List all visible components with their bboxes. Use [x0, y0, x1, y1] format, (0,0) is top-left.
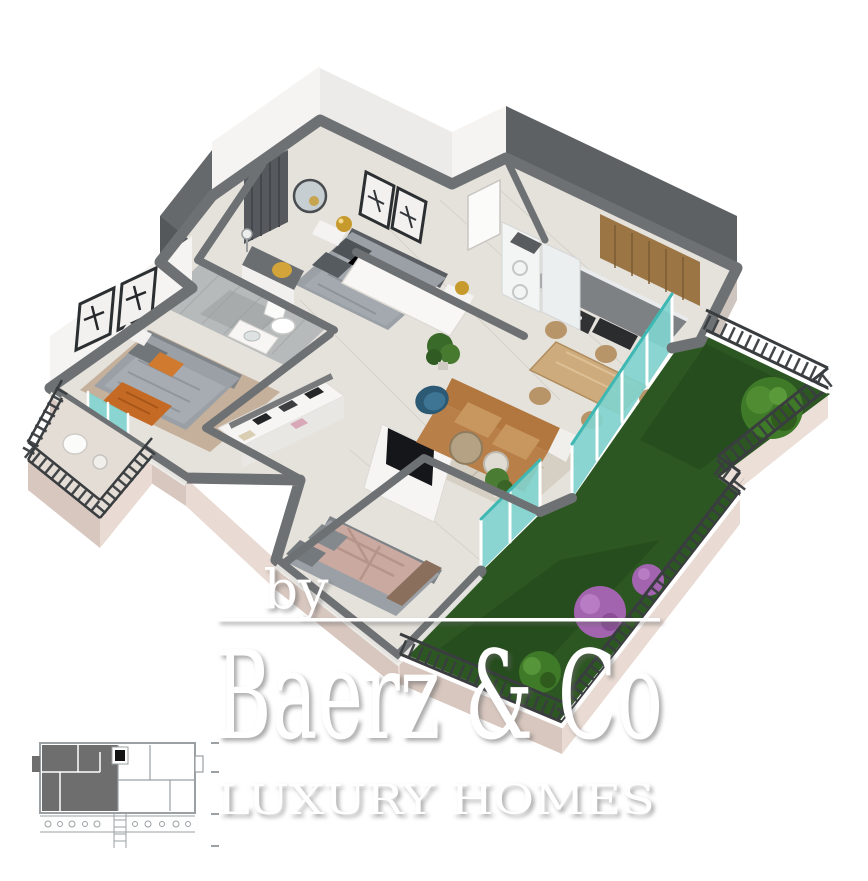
- brand-name: Baerz & Co: [215, 625, 663, 767]
- dining-chair: [545, 321, 567, 339]
- inset-highlighted-unit: [42, 745, 118, 811]
- floorplan-render-page: by Baerz & Co LUXURY HOMES: [0, 0, 868, 881]
- dining-chair: [529, 387, 551, 405]
- balcony-chair: [63, 434, 87, 454]
- watermark-line: [217, 618, 660, 622]
- isometric-floorplan: by Baerz & Co LUXURY HOMES: [0, 0, 868, 881]
- balcony-table: [93, 455, 107, 469]
- toilet: [271, 318, 295, 334]
- inset-garden-band: [40, 814, 195, 848]
- shower-head: [242, 229, 252, 239]
- gold-lamp: [336, 216, 352, 232]
- yellow-chair: [272, 262, 292, 278]
- coffee-table: [450, 432, 482, 464]
- inset-floorplan: [32, 743, 219, 848]
- dining-chair: [595, 345, 617, 363]
- gold-lamp: [455, 281, 469, 295]
- round-mirror: [294, 180, 326, 212]
- tagline: LUXURY HOMES: [217, 776, 655, 824]
- watermark-by: by: [263, 558, 329, 621]
